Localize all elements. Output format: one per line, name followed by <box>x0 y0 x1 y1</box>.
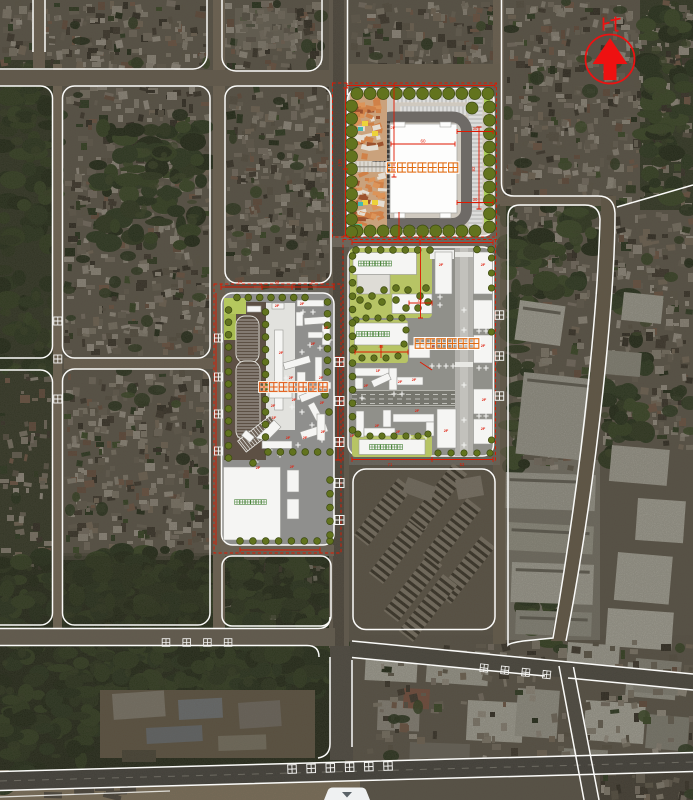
svg-text:2F: 2F <box>321 429 326 434</box>
svg-text:2F: 2F <box>320 400 325 405</box>
svg-text:2F: 2F <box>300 301 305 306</box>
svg-text:2F: 2F <box>412 377 417 382</box>
svg-text:138: 138 <box>338 159 343 167</box>
svg-text:2F: 2F <box>271 403 276 408</box>
svg-text:1F: 1F <box>376 368 381 373</box>
svg-text:1F: 1F <box>272 415 277 420</box>
svg-text:2F: 2F <box>439 262 444 267</box>
svg-text:2F: 2F <box>396 429 401 434</box>
svg-text:71: 71 <box>388 462 393 467</box>
svg-text:30: 30 <box>473 197 478 202</box>
svg-text:15: 15 <box>238 279 243 284</box>
svg-text:2F: 2F <box>319 375 324 380</box>
svg-text:2F: 2F <box>279 350 284 355</box>
svg-text:2F: 2F <box>292 397 297 402</box>
svg-text:2F: 2F <box>398 379 403 384</box>
svg-text:2F: 2F <box>290 464 295 469</box>
svg-text:2F: 2F <box>324 325 329 330</box>
svg-text:48: 48 <box>379 344 384 349</box>
svg-text:2F: 2F <box>311 341 316 346</box>
svg-text:2F: 2F <box>481 426 486 431</box>
svg-text:2F: 2F <box>364 383 369 388</box>
svg-text:53: 53 <box>460 462 465 467</box>
svg-text:60: 60 <box>420 139 426 144</box>
svg-text:2F: 2F <box>415 408 420 413</box>
svg-text:1F: 1F <box>350 433 355 438</box>
svg-text:2F: 2F <box>289 375 294 380</box>
svg-text:2F: 2F <box>286 435 291 440</box>
svg-text:32: 32 <box>311 279 316 284</box>
svg-text:2F: 2F <box>256 465 261 470</box>
svg-text:2F: 2F <box>444 428 449 433</box>
svg-text:25: 25 <box>275 279 280 284</box>
svg-text:96: 96 <box>418 235 423 240</box>
svg-text:2F: 2F <box>482 397 487 402</box>
svg-text:26: 26 <box>418 298 423 303</box>
svg-text:82: 82 <box>471 166 476 172</box>
svg-text:2F: 2F <box>481 262 486 267</box>
svg-text:2F: 2F <box>275 303 280 308</box>
svg-text:30: 30 <box>473 126 478 131</box>
svg-text:2F: 2F <box>481 343 486 348</box>
svg-text:2F: 2F <box>303 435 308 440</box>
svg-text:2F: 2F <box>391 125 396 130</box>
svg-text:2F: 2F <box>375 423 380 428</box>
